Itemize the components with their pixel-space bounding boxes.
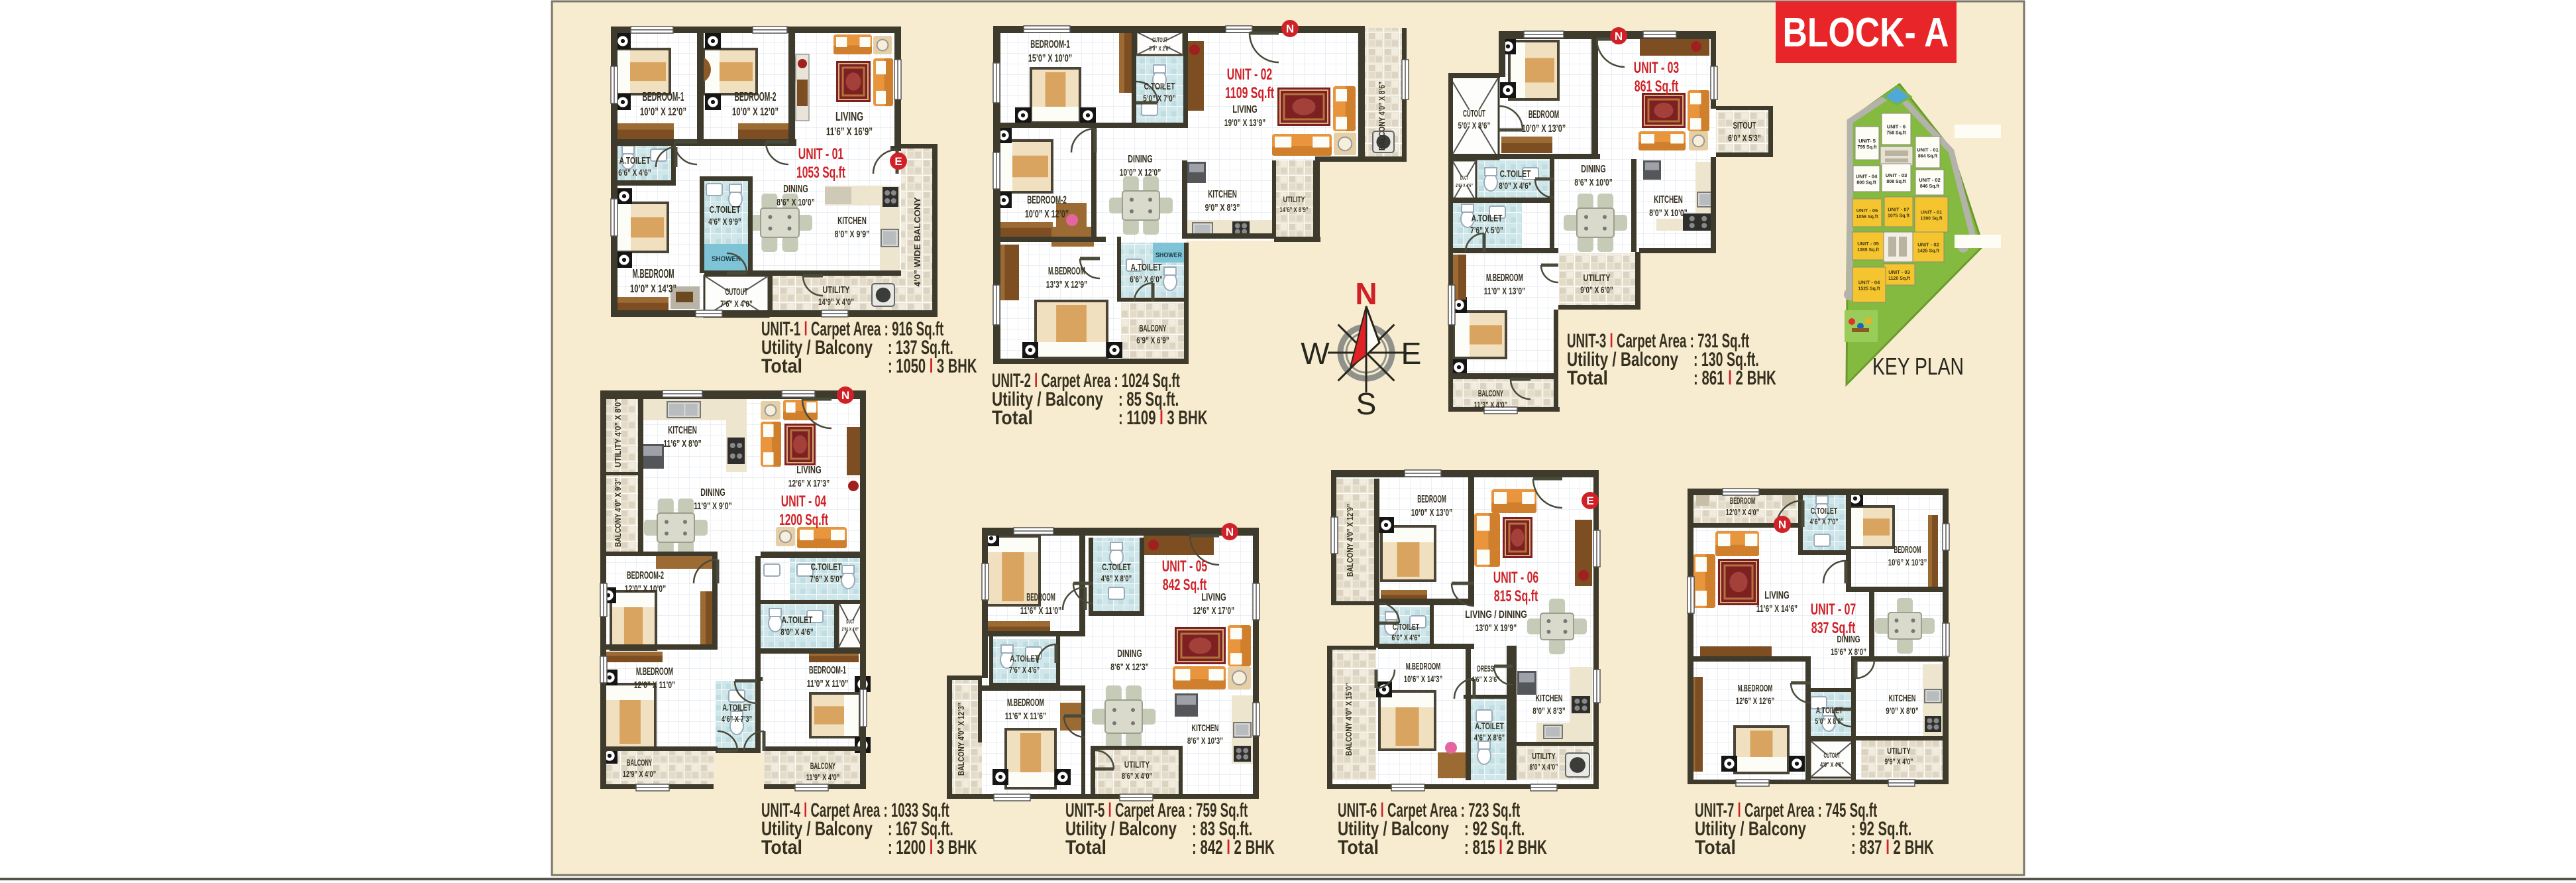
- svg-text:795 Sq.ft: 795 Sq.ft: [1857, 145, 1877, 150]
- svg-text:A.TOILET: A.TOILET: [782, 615, 813, 626]
- svg-text:11’9” X 4’0”: 11’9” X 4’0”: [806, 772, 839, 782]
- svg-text:10’0” X 12’0”: 10’0” X 12’0”: [732, 105, 778, 118]
- svg-text:12’6” X 12’6”: 12’6” X 12’6”: [1736, 695, 1775, 706]
- svg-text:15’6” X 8’0”: 15’6” X 8’0”: [1831, 646, 1866, 657]
- svg-text:C.TOILET: C.TOILET: [710, 204, 741, 215]
- svg-text:8’0” X 4’6”: 8’0” X 4’6”: [1499, 180, 1532, 191]
- svg-text:C.TOILET: C.TOILET: [1102, 561, 1131, 572]
- svg-text:BALCONY 4’0” X 15’0”: BALCONY 4’0” X 15’0”: [1344, 683, 1354, 756]
- svg-text:UNIT - 04: UNIT - 04: [1856, 174, 1878, 180]
- svg-text:1075 Sq.ft: 1075 Sq.ft: [1888, 214, 1910, 219]
- svg-text:11’6” X 14’6”: 11’6” X 14’6”: [1756, 603, 1798, 615]
- svg-text:C.TOILET: C.TOILET: [1500, 168, 1531, 180]
- svg-text:BEDROOM: BEDROOM: [1026, 592, 1055, 603]
- svg-text:UNIT - 04: UNIT - 04: [1858, 280, 1880, 286]
- svg-text:BALCONY: BALCONY: [810, 760, 836, 771]
- svg-text:M.BEDROOM: M.BEDROOM: [1048, 266, 1085, 277]
- svg-text:1200 Sq.ft: 1200 Sq.ft: [779, 511, 828, 529]
- svg-text:12’6” X 17’3”: 12’6” X 17’3”: [788, 478, 830, 489]
- svg-text:5’0” X 8’6”: 5’0” X 8’6”: [1458, 120, 1491, 131]
- svg-text:CUTOUT: CUTOUT: [1152, 37, 1167, 44]
- svg-text:758 Sq.ft: 758 Sq.ft: [1886, 131, 1906, 136]
- svg-text:8’0” X 4’6”: 8’0” X 4’6”: [780, 626, 814, 637]
- svg-text:815 Sq.ft: 815 Sq.ft: [1494, 587, 1538, 605]
- svg-text:8’6” X 4’0”: 8’6” X 4’0”: [1122, 771, 1152, 781]
- svg-text:N: N: [1286, 23, 1294, 35]
- svg-text:6’6” X 4’6”: 6’6” X 4’6”: [618, 167, 651, 178]
- svg-text:: 837 l 2 BHK: : 837 l 2 BHK: [1851, 837, 1934, 858]
- svg-text:KITCHEN: KITCHEN: [1889, 693, 1916, 704]
- svg-text:E: E: [1401, 336, 1422, 371]
- svg-text:6’9” X 6’9”: 6’9” X 6’9”: [1136, 335, 1169, 345]
- svg-text:8’0” X 9’9”: 8’0” X 9’9”: [835, 229, 870, 240]
- svg-text:C.TOILET: C.TOILET: [1811, 506, 1838, 516]
- svg-text:C.TOILET: C.TOILET: [1393, 622, 1420, 632]
- svg-text:10’0” X 12’0”: 10’0” X 12’0”: [1025, 209, 1069, 220]
- svg-text:DINING: DINING: [783, 184, 808, 195]
- svg-text:1390 Sq.ft: 1390 Sq.ft: [1920, 217, 1943, 221]
- svg-text:10’0” X 14’3”: 10’0” X 14’3”: [630, 282, 676, 295]
- svg-text:7’6” X 4’0”: 7’6” X 4’0”: [720, 298, 753, 309]
- svg-text:SHOWER: SHOWER: [1155, 252, 1183, 259]
- svg-text:8’6” X 10’0”: 8’6” X 10’0”: [1574, 177, 1613, 188]
- svg-text:N: N: [1355, 276, 1377, 311]
- svg-text:BEDROOM-2: BEDROOM-2: [734, 90, 776, 103]
- svg-text:9’0” X 8’3”: 9’0” X 8’3”: [1205, 202, 1240, 213]
- svg-text:: 1109 l 3 BHK: : 1109 l 3 BHK: [1118, 407, 1208, 429]
- svg-text:DINING: DINING: [1581, 164, 1605, 175]
- svg-text:S: S: [1356, 386, 1377, 421]
- svg-text:BEDROOM: BEDROOM: [1730, 495, 1755, 506]
- svg-text:UNIT - 03: UNIT - 03: [1634, 59, 1679, 77]
- svg-text:: 815 l 2 BHK: : 815 l 2 BHK: [1464, 837, 1547, 858]
- svg-text:A.TOILET: A.TOILET: [1816, 705, 1843, 715]
- svg-text:11’0” X 13’0”: 11’0” X 13’0”: [1484, 286, 1525, 297]
- svg-text:BEDROOM-1: BEDROOM-1: [642, 90, 684, 103]
- svg-text:1425 Sq.ft: 1425 Sq.ft: [1917, 249, 1940, 254]
- svg-text:846 Sq.ft: 846 Sq.ft: [1920, 184, 1940, 189]
- svg-text:11’3” X 4’0”: 11’3” X 4’0”: [1474, 400, 1507, 410]
- svg-text:: 1050 l 3 BHK: : 1050 l 3 BHK: [888, 355, 977, 377]
- svg-text:N: N: [1778, 518, 1786, 531]
- svg-text:10’0” X 13’0”: 10’0” X 13’0”: [1522, 123, 1566, 135]
- svg-text:UNIT - 01: UNIT - 01: [798, 145, 843, 163]
- svg-text:BEDROOM-2: BEDROOM-2: [627, 570, 664, 581]
- svg-text:BEDROOM: BEDROOM: [1894, 544, 1921, 556]
- svg-text:N: N: [841, 389, 849, 402]
- svg-text:BALCONY 4’0” X 12’3”: BALCONY 4’0” X 12’3”: [956, 703, 966, 776]
- svg-text:8’0” X 4’0”: 8’0” X 4’0”: [1530, 762, 1558, 772]
- svg-text:11’6” X 8’0”: 11’6” X 8’0”: [663, 438, 702, 449]
- svg-text:8’6” X 12’3”: 8’6” X 12’3”: [1110, 662, 1149, 673]
- svg-text:UNIT - 05: UNIT - 05: [1162, 558, 1207, 575]
- svg-text:8’6” X 10’3”: 8’6” X 10’3”: [1187, 735, 1223, 746]
- svg-text:: 1200 l 3 BHK: : 1200 l 3 BHK: [888, 837, 977, 858]
- svg-text:UNIT - 07: UNIT - 07: [1811, 601, 1856, 618]
- svg-text:A.TOILET: A.TOILET: [1472, 213, 1503, 224]
- svg-text:UNIT - 03: UNIT - 03: [1886, 172, 1907, 178]
- svg-text:800 Sq.ft: 800 Sq.ft: [1856, 181, 1876, 186]
- svg-text:N: N: [1615, 30, 1623, 42]
- svg-text:A.TOILET: A.TOILET: [722, 702, 751, 713]
- svg-text:UNIT - 07: UNIT - 07: [1888, 207, 1909, 213]
- svg-text:M.BEDROOM: M.BEDROOM: [1406, 661, 1441, 672]
- svg-text:1053 Sq.ft: 1053 Sq.ft: [796, 164, 845, 182]
- svg-text:BALCONY 4’0” X 8’6”: BALCONY 4’0” X 8’6”: [1377, 82, 1387, 150]
- svg-text:BEDROOM: BEDROOM: [1417, 494, 1446, 505]
- svg-text:10’6” X 10’3”: 10’6” X 10’3”: [1888, 557, 1927, 567]
- svg-text:4’0” WIDE BALCONY: 4’0” WIDE BALCONY: [912, 197, 922, 286]
- svg-text:13’3” X 12’9”: 13’3” X 12’9”: [1046, 279, 1087, 290]
- svg-text:11’0” X 11’0”: 11’0” X 11’0”: [807, 678, 848, 689]
- svg-text:: 842 l 2 BHK: : 842 l 2 BHK: [1192, 837, 1275, 858]
- svg-text:LIVING: LIVING: [1232, 104, 1257, 115]
- svg-text:M.BEDROOM: M.BEDROOM: [1738, 683, 1773, 694]
- svg-text:W: W: [1301, 336, 1330, 371]
- svg-text:4’6” X 7’0”: 4’6” X 7’0”: [1810, 517, 1839, 526]
- svg-text:Total: Total: [992, 407, 1033, 429]
- svg-text:BEDROOM: BEDROOM: [1529, 108, 1559, 121]
- svg-text:A.TOILET: A.TOILET: [1010, 653, 1039, 664]
- svg-text:A.TOILET: A.TOILET: [619, 155, 651, 166]
- svg-text:UNIT - 02: UNIT - 02: [1917, 242, 1939, 248]
- svg-text:9’0” X 8’0”: 9’0” X 8’0”: [1886, 705, 1919, 716]
- svg-text:C.TOILET: C.TOILET: [811, 561, 842, 573]
- svg-text:UNIT - 03: UNIT - 03: [1888, 269, 1910, 275]
- svg-text:: 861 l 2 BHK: : 861 l 2 BHK: [1693, 367, 1776, 389]
- svg-text:UNIT - 05: UNIT - 05: [1857, 241, 1879, 247]
- svg-text:861 Sq.ft: 861 Sq.ft: [1635, 78, 1679, 95]
- svg-text:BALCONY 4’0” X 9’3”: BALCONY 4’0” X 9’3”: [613, 478, 623, 547]
- svg-text:UNIT - 6: UNIT - 6: [1887, 124, 1905, 130]
- svg-text:LIVING: LIVING: [1201, 592, 1226, 603]
- svg-text:KITCHEN: KITCHEN: [668, 425, 697, 436]
- svg-text:SITOUT: SITOUT: [1733, 120, 1756, 131]
- svg-text:DINING: DINING: [700, 487, 725, 499]
- svg-text:BALCONY: BALCONY: [627, 757, 653, 768]
- svg-text:BALCONY: BALCONY: [1478, 388, 1504, 398]
- svg-text:Total: Total: [1065, 837, 1106, 858]
- svg-text:10’6” X 14’3”: 10’6” X 14’3”: [1404, 674, 1443, 684]
- svg-text:808 Sq.ft: 808 Sq.ft: [1886, 180, 1906, 184]
- svg-text:KITCHEN: KITCHEN: [1536, 693, 1563, 704]
- svg-text:CUTOUT: CUTOUT: [1463, 108, 1485, 119]
- svg-text:5’0” X 8’0”: 5’0” X 8’0”: [1815, 717, 1844, 726]
- svg-text:KITCHEN: KITCHEN: [1192, 723, 1219, 734]
- svg-text:UNIT- 5: UNIT- 5: [1858, 138, 1876, 144]
- svg-text:11’9” X 9’0”: 11’9” X 9’0”: [694, 500, 732, 512]
- svg-text:DUCT: DUCT: [846, 619, 854, 625]
- svg-text:BEDROOM-1: BEDROOM-1: [1030, 38, 1070, 50]
- svg-text:M.BEDROOM: M.BEDROOM: [632, 267, 674, 280]
- svg-text:Total: Total: [1567, 367, 1608, 389]
- svg-text:C.TOILET: C.TOILET: [1144, 81, 1175, 92]
- svg-text:6’0” X 4’6”: 6’0” X 4’6”: [1392, 633, 1421, 642]
- svg-text:11’6” X 16’9”: 11’6” X 16’9”: [826, 125, 873, 138]
- svg-text:BALCONY: BALCONY: [1140, 323, 1167, 334]
- svg-text:4’6” X 8’0”: 4’6” X 8’0”: [1101, 573, 1132, 583]
- svg-text:Total: Total: [1695, 837, 1736, 858]
- svg-text:UTILITY 4’0” X 8’0”: UTILITY 4’0” X 8’0”: [613, 398, 623, 467]
- svg-text:11’6” X 11’0”: 11’6” X 11’0”: [1020, 605, 1061, 617]
- svg-text:1109 Sq.ft: 1109 Sq.ft: [1225, 84, 1274, 102]
- svg-text:KITCHEN: KITCHEN: [1208, 189, 1237, 200]
- svg-text:BALCONY 4’0” X 12’9”: BALCONY 4’0” X 12’9”: [1345, 504, 1355, 577]
- svg-text:4’9” X 4’6”: 4’9” X 4’6”: [1820, 762, 1844, 769]
- svg-text:2’6” X 4’6”: 2’6” X 4’6”: [1456, 184, 1473, 188]
- svg-text:LIVING: LIVING: [835, 110, 863, 123]
- svg-text:14’9” X 4’0”: 14’9” X 4’0”: [818, 296, 854, 307]
- svg-text:LIVING / DINING: LIVING / DINING: [1465, 609, 1527, 620]
- svg-text:9’9” X 4’0”: 9’9” X 4’0”: [1885, 757, 1913, 766]
- svg-text:DUCT: DUCT: [1460, 175, 1468, 181]
- svg-text:UNIT - 02: UNIT - 02: [1919, 177, 1941, 183]
- svg-text:4’6” X 8’6”: 4’6” X 8’6”: [1474, 733, 1505, 742]
- svg-text:Total: Total: [761, 355, 802, 377]
- svg-text:LIVING: LIVING: [796, 465, 821, 476]
- svg-text:CUTOUT: CUTOUT: [1823, 752, 1840, 760]
- svg-text:13’0” X 19’9”: 13’0” X 19’9”: [1476, 622, 1517, 634]
- svg-text:M.BEDROOM: M.BEDROOM: [1486, 272, 1523, 284]
- svg-text:6’6” X 6’0”: 6’6” X 6’0”: [1130, 274, 1163, 284]
- svg-text:CUTOUT: CUTOUT: [725, 286, 747, 298]
- svg-text:1085 Sq.ft: 1085 Sq.ft: [1857, 248, 1880, 253]
- svg-text:1056 Sq.ft: 1056 Sq.ft: [1856, 215, 1878, 219]
- svg-text:10’0” X 13’0”: 10’0” X 13’0”: [1411, 507, 1452, 518]
- svg-text:UNIT - 04: UNIT - 04: [781, 493, 827, 510]
- svg-text:7’6” X 5’0”: 7’6” X 5’0”: [1470, 225, 1503, 235]
- svg-text:UNIT - 06: UNIT - 06: [1493, 569, 1538, 587]
- svg-text:DINING: DINING: [1117, 648, 1142, 660]
- svg-text:UNIT - 01: UNIT - 01: [1921, 209, 1943, 215]
- svg-text:M.BEDROOM: M.BEDROOM: [1007, 697, 1044, 709]
- svg-text:UNIT - 01: UNIT - 01: [1917, 147, 1939, 153]
- svg-text:LIVING: LIVING: [1764, 590, 1789, 601]
- svg-text:KEY PLAN: KEY PLAN: [1872, 353, 1964, 380]
- svg-text:4’6” X 7’3”: 4’6” X 7’3”: [722, 714, 752, 724]
- svg-text:12’0” X 11’0”: 12’0” X 11’0”: [634, 679, 675, 691]
- svg-text:UTILITY: UTILITY: [823, 284, 850, 296]
- svg-text:4’6” X 9’9”: 4’6” X 9’9”: [708, 216, 741, 227]
- svg-text:1525 Sq.ft: 1525 Sq.ft: [1858, 287, 1880, 292]
- svg-text:UTILITY: UTILITY: [1887, 746, 1911, 756]
- svg-text:12’0” X 4’0”: 12’0” X 4’0”: [1726, 507, 1759, 517]
- svg-text:A.TOILET: A.TOILET: [1475, 721, 1504, 731]
- svg-text:19’0” X 13’9”: 19’0” X 13’9”: [1224, 117, 1265, 129]
- svg-text:DINING: DINING: [1128, 154, 1152, 165]
- svg-text:Total: Total: [1338, 837, 1379, 858]
- svg-text:KITCHEN: KITCHEN: [1654, 194, 1683, 206]
- svg-text:7’6” X 5’0”: 7’6” X 5’0”: [810, 573, 843, 584]
- svg-text:E: E: [1586, 495, 1593, 507]
- svg-text:1120 Sq.ft: 1120 Sq.ft: [1888, 276, 1910, 281]
- svg-text:DINING: DINING: [1837, 634, 1860, 645]
- svg-text:KITCHEN: KITCHEN: [837, 215, 867, 227]
- svg-text:4’6” X 3’6”: 4’6” X 3’6”: [1472, 675, 1500, 684]
- svg-text:15’0” X 10’0”: 15’0” X 10’0”: [1028, 53, 1072, 64]
- svg-text:UTILITY: UTILITY: [1124, 759, 1150, 770]
- svg-text:M.BEDROOM: M.BEDROOM: [636, 666, 673, 677]
- svg-text:6’0” X 5’3”: 6’0” X 5’3”: [1728, 133, 1761, 143]
- svg-text:11’6” X 11’6”: 11’6” X 11’6”: [1005, 711, 1046, 722]
- svg-text:UTILITY: UTILITY: [1583, 272, 1611, 284]
- svg-text:A.TOILET: A.TOILET: [1131, 262, 1162, 273]
- svg-text:Total: Total: [761, 837, 802, 858]
- svg-text:12’6” X 17’0”: 12’6” X 17’0”: [1193, 605, 1234, 617]
- svg-text:5’0” X 2’6”: 5’0” X 2’6”: [1149, 46, 1170, 52]
- svg-text:DRESS: DRESS: [1477, 664, 1493, 674]
- svg-text:5’0” X 7’0”: 5’0” X 7’0”: [1143, 93, 1176, 103]
- svg-text:12’0” X 10’0”: 12’0” X 10’0”: [625, 583, 666, 595]
- svg-text:12’9” X 4’0”: 12’9” X 4’0”: [623, 769, 656, 779]
- svg-text:UTILITY: UTILITY: [1283, 195, 1305, 204]
- svg-text:864 Sq.ft: 864 Sq.ft: [1918, 154, 1938, 159]
- svg-text:UTILITY: UTILITY: [1532, 751, 1556, 761]
- svg-text:14’6” X 8’9”: 14’6” X 8’9”: [1279, 206, 1308, 214]
- svg-text:10’0” X 12’0”: 10’0” X 12’0”: [640, 105, 686, 118]
- svg-text:8’6” X 10’0”: 8’6” X 10’0”: [777, 197, 815, 208]
- svg-text:BEDROOM-1: BEDROOM-1: [809, 665, 846, 676]
- svg-text:BEDROOM-2: BEDROOM-2: [1027, 194, 1067, 206]
- svg-text:N: N: [1226, 526, 1234, 538]
- svg-text:842 Sq.ft: 842 Sq.ft: [1163, 576, 1207, 594]
- svg-text:2’6” X 4’6”: 2’6” X 4’6”: [842, 628, 859, 632]
- svg-text:8’0” X 10’0”: 8’0” X 10’0”: [1649, 207, 1688, 219]
- svg-text:10’0” X 12’0”: 10’0” X 12’0”: [1120, 167, 1161, 178]
- svg-text:UNIT - 02: UNIT - 02: [1227, 66, 1272, 84]
- svg-text:9’0” X 6’0”: 9’0” X 6’0”: [1580, 284, 1613, 295]
- svg-text:UNIT - 06: UNIT - 06: [1856, 207, 1878, 213]
- svg-text:7’6” X 4’6”: 7’6” X 4’6”: [1009, 665, 1040, 675]
- svg-text:E: E: [894, 155, 902, 168]
- svg-text:8’0” X 8’3”: 8’0” X 8’3”: [1532, 705, 1566, 716]
- svg-text:BLOCK- A: BLOCK- A: [1783, 10, 1949, 56]
